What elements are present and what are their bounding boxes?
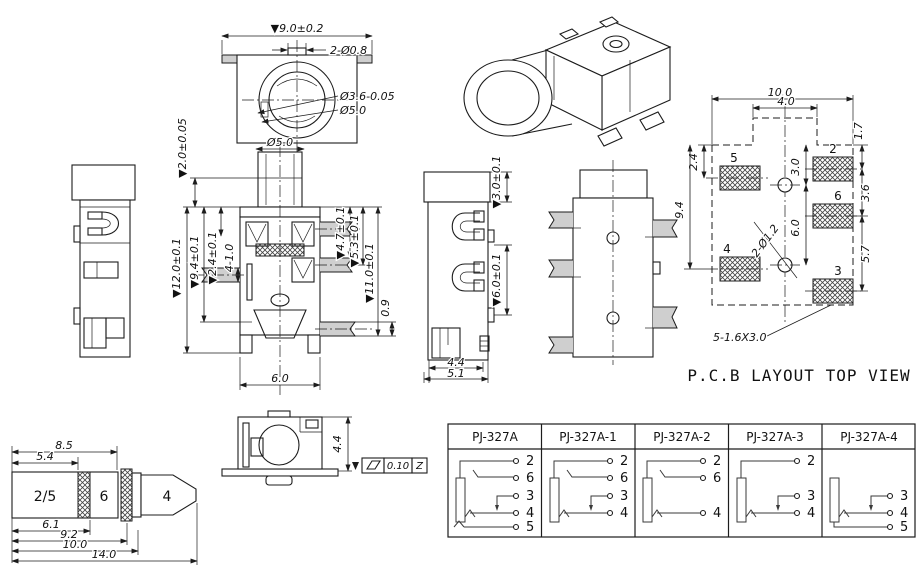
- dim-pcb-94: 9.4: [673, 201, 686, 219]
- table-header-pj327a4: PJ-327A-4: [840, 430, 898, 444]
- pcb-pad-label-6: 6: [834, 189, 842, 203]
- side-view: ▼3.0±0.1 ▼6.0±0.1 4.4 5.1: [424, 156, 512, 383]
- dim-front-holes: 2-Ø0.8: [330, 44, 367, 57]
- pcb-pad-label-4: 4: [723, 242, 731, 256]
- dim-plug-54: 5.4: [36, 450, 54, 463]
- dim-section-pins: 4-1.0: [223, 244, 236, 272]
- bottomview-pin-l2: [549, 260, 573, 277]
- dim-section-r47: ▼4.7±0.1: [334, 207, 347, 260]
- leftview-cap: [72, 165, 135, 200]
- rear-view: 4.4 0.10 Z: [222, 411, 427, 485]
- dim-pcb-57: 5.7: [859, 245, 872, 263]
- pin-label: 5: [526, 520, 534, 535]
- pin-label: 3: [807, 489, 815, 504]
- dim-plug-61: 6.1: [42, 518, 60, 531]
- pin-label: 4: [900, 506, 908, 521]
- pcb-pad-label-3: 3: [834, 264, 842, 278]
- schematic-pj327a1: 2 6 3 4: [550, 454, 628, 522]
- dim-plug-140: 14.0: [92, 548, 117, 561]
- tolerance-datum: Z: [415, 461, 424, 472]
- plug-seg-ring: 6: [100, 489, 109, 505]
- parallelism-symbol-icon: [367, 461, 380, 469]
- pin-label: 2: [713, 454, 721, 469]
- table-header-pj327a1: PJ-327A-1: [559, 430, 617, 444]
- schematic-sleeve: [456, 478, 465, 522]
- schematic-sleeve: [643, 478, 652, 522]
- rear-baseplate: [222, 469, 338, 476]
- iso-foot-right: [640, 112, 664, 130]
- schematic-pj327a3: 2 3 4: [737, 454, 815, 522]
- bottomview-pin-l3: [549, 337, 573, 353]
- isometric-view: [464, 17, 670, 146]
- bottomview-cap: [580, 170, 647, 198]
- pcb-caption: P.C.B LAYOUT TOP VIEW: [687, 366, 910, 385]
- pin-label: 3: [900, 489, 908, 504]
- dim-pcb-36: 3.6: [859, 184, 872, 202]
- dim-side-cap: ▼3.0±0.1: [490, 156, 503, 209]
- dim-front-outer: Ø5.0: [339, 104, 366, 117]
- schematic-sleeve: [550, 478, 559, 522]
- pin-label: 2: [526, 454, 534, 469]
- pin-label: 2: [620, 454, 628, 469]
- pin-label: 6: [620, 471, 628, 486]
- variant-table: PJ-327A PJ-327A-1 PJ-327A-2 PJ-327A-3 PJ…: [448, 424, 915, 537]
- schematic-sleeve: [830, 478, 839, 522]
- dim-plug-85: 8.5: [55, 439, 73, 452]
- pin-label: 4: [713, 506, 721, 521]
- dim-pcb-60: 6.0: [789, 219, 802, 237]
- dim-pcb-30: 3.0: [789, 158, 802, 176]
- schematic-pj327a4: 3 4 5: [830, 478, 908, 535]
- pin-label: 3: [526, 489, 534, 504]
- plug-insulator-2: [121, 469, 132, 521]
- bottomview-pin-r1: [653, 220, 677, 237]
- dim-rear-h: 4.4: [331, 435, 344, 453]
- dim-front-width: ▼9.0±0.2: [271, 22, 324, 35]
- sideview-cap: [424, 172, 490, 202]
- schematic-sleeve: [737, 478, 746, 522]
- pcb-layout: 5 2 6 4 3 10.0 4.0 1.7 2.4 9.4 3.0 6.0 3…: [673, 86, 911, 385]
- bottom-view: [549, 160, 677, 365]
- dim-pcb-17: 1.7: [852, 122, 865, 140]
- pcb-pad-label-5: 5: [730, 151, 738, 165]
- pin-label: 4: [620, 506, 628, 521]
- left-side-view: [72, 165, 135, 357]
- pin-label: 6: [713, 471, 721, 486]
- dim-section-h94: ▼9.4±0.1: [188, 236, 201, 289]
- pin-label: 2: [807, 454, 815, 469]
- plug-seg-sleeve: 2/5: [34, 489, 57, 505]
- dim-section-barrel: Ø5.0: [266, 136, 293, 149]
- dim-plug-100: 10.0: [63, 538, 88, 551]
- dim-section-total: ▼12.0±0.1: [170, 238, 183, 298]
- schematic-pj327a2: 2 6 4: [643, 454, 721, 522]
- dim-pcb-pads: 5-1.6X3.0: [713, 331, 767, 344]
- section-view: Ø5.0 ▼2.0±0.05 ▼12.0±0.1 ▼9.4±0.1 ▼2.4±0…: [170, 118, 396, 395]
- dim-section-flange: ▼2.0±0.05: [176, 118, 189, 178]
- front-view: ▼9.0±0.2 2-Ø0.8 Ø3.6-0.05 Ø5.0: [222, 22, 395, 160]
- dim-side-pitch: ▼6.0±0.1: [490, 254, 503, 307]
- bottomview-pin-l1: [549, 212, 573, 228]
- pin-label: 5: [900, 520, 908, 535]
- pin-label: 4: [526, 506, 534, 521]
- sideview-body: [428, 202, 488, 360]
- table-header-pj327a2: PJ-327A-2: [653, 430, 711, 444]
- datum-arrow: [352, 462, 359, 470]
- plug-view: 2/5 6 4 8.5 5.4 6.1 9.2 10.0 14.0: [12, 439, 197, 565]
- dim-side-w51: 5.1: [447, 367, 465, 380]
- front-flange-left: [222, 55, 237, 63]
- technical-drawing-sheet: ▼9.0±0.2 2-Ø0.8 Ø3.6-0.05 Ø5.0: [0, 0, 916, 569]
- pin-label: 3: [620, 489, 628, 504]
- dim-section-r09: 0.9: [379, 299, 392, 317]
- dim-section-width: 6.0: [271, 372, 289, 385]
- dim-pcb-24: 2.4: [687, 153, 700, 171]
- dim-front-inner: Ø3.6-0.05: [339, 90, 395, 103]
- plug-seg-tip: 4: [163, 489, 172, 505]
- tolerance-value: 0.10: [387, 461, 409, 472]
- pin-label: 4: [807, 506, 815, 521]
- plug-insulator-1: [78, 472, 90, 518]
- pin-label: 6: [526, 471, 534, 486]
- section-insulator: [256, 244, 304, 256]
- table-header-pj327a: PJ-327A: [472, 430, 519, 444]
- dim-pcb-holes: 2-Ø1.2: [749, 222, 782, 259]
- dim-section-r110: ▼11.0±0.1: [363, 243, 376, 303]
- table-header-pj327a3: PJ-327A-3: [746, 430, 804, 444]
- dim-section-r53: ▼5.3±0.1: [348, 215, 361, 268]
- pcb-pad-label-2: 2: [829, 142, 837, 156]
- dim-section-h24: ▼2.4±0.1: [206, 232, 219, 285]
- bottomview-pin-r2: [653, 307, 677, 328]
- schematic-pj327a: 2 6 3 4 5: [454, 454, 534, 535]
- dim-pcb-w40: 4.0: [777, 95, 795, 108]
